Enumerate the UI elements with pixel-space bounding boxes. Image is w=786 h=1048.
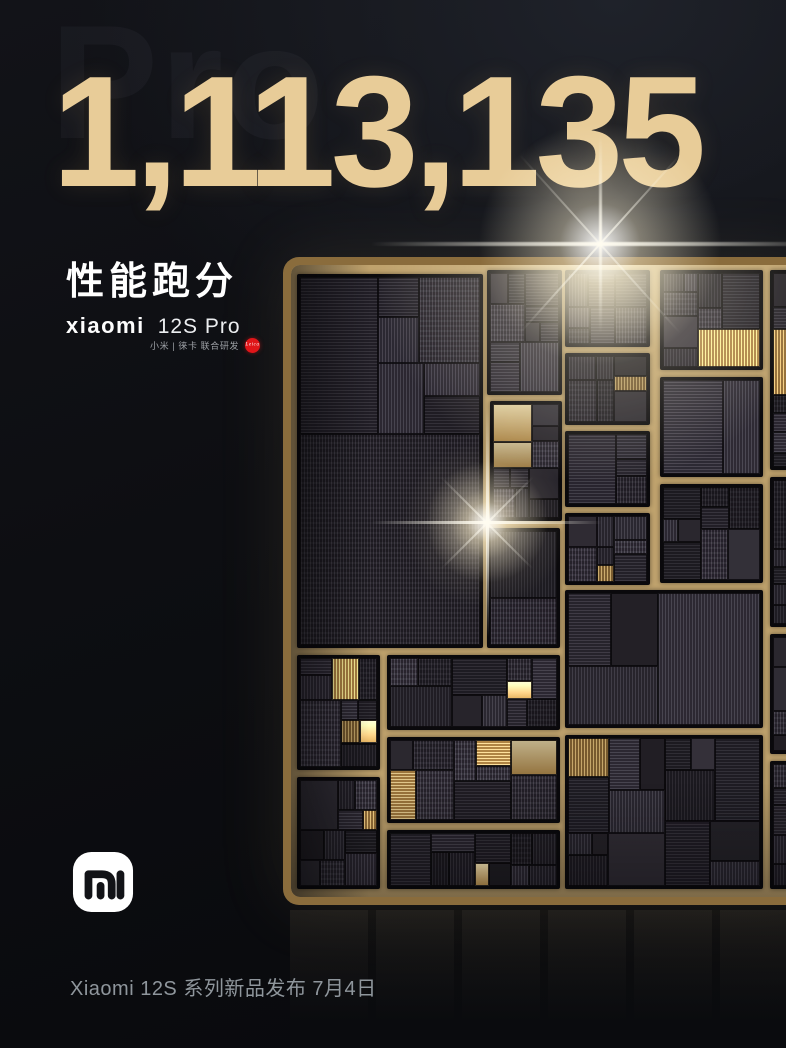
- die-cell: [454, 740, 476, 781]
- die-cell: [614, 516, 647, 540]
- die-cell: [701, 507, 728, 529]
- die-cell: [568, 738, 609, 777]
- mi-logo-icon: [72, 851, 134, 913]
- die-cell: [615, 307, 647, 344]
- die-cell: [568, 547, 597, 582]
- die-cell: [525, 306, 559, 322]
- die-cell: [490, 304, 525, 341]
- die-cell: [341, 744, 377, 767]
- die-cell: [431, 852, 449, 886]
- die-cell: [665, 821, 711, 886]
- die-macro-block: [297, 274, 483, 648]
- die-cell: [568, 593, 611, 666]
- die-cell: [597, 547, 614, 565]
- die-cell: [378, 277, 419, 317]
- die-cell: [773, 273, 786, 307]
- die-cell: [614, 540, 647, 555]
- die-cell: [663, 292, 698, 316]
- die-cell: [773, 567, 786, 585]
- die-cell: [490, 342, 520, 362]
- brand-line: xiaomi 12S Pro: [66, 313, 241, 339]
- die-cell: [773, 764, 786, 788]
- die-cell: [507, 658, 532, 681]
- die-cell: [773, 864, 786, 886]
- die-cell: [691, 738, 715, 770]
- die-macro-block: [770, 634, 786, 754]
- die-cell: [597, 380, 614, 422]
- die-cell: [338, 810, 363, 829]
- die-cell: [773, 637, 786, 667]
- die-cell: [300, 658, 332, 675]
- die-cell: [360, 720, 377, 744]
- die-cell: [663, 519, 678, 542]
- die-cell: [476, 766, 511, 781]
- die-cell: [723, 380, 760, 474]
- die-cell: [300, 434, 480, 645]
- die-cell: [300, 675, 332, 700]
- die-cell: [490, 273, 508, 304]
- die-macro-block: [487, 528, 560, 648]
- chip-die-visual: [291, 265, 786, 897]
- die-cell: [568, 516, 597, 547]
- die-cell: [773, 480, 786, 549]
- die-cell: [493, 468, 510, 488]
- die-macro-block: [565, 590, 763, 728]
- die-cell: [529, 468, 559, 499]
- die-cell: [614, 376, 647, 390]
- die-cell: [663, 380, 723, 474]
- die-cell: [493, 442, 532, 468]
- die-macro-block: [565, 735, 763, 889]
- die-cell: [515, 488, 529, 518]
- die-cell: [475, 833, 511, 863]
- die-cell: [710, 821, 760, 862]
- die-cell: [431, 833, 475, 852]
- die-cell: [597, 516, 614, 547]
- die-cell: [529, 499, 559, 518]
- die-cell: [568, 307, 590, 328]
- die-cell: [520, 342, 559, 392]
- die-cell: [355, 780, 377, 810]
- die-cell: [773, 329, 786, 395]
- die-cell: [592, 833, 608, 855]
- die-cell: [341, 720, 361, 744]
- die-cell: [416, 770, 454, 820]
- die-cell: [511, 833, 532, 865]
- die-cell: [615, 273, 647, 307]
- die-cell: [390, 658, 418, 686]
- die-cell: [663, 348, 698, 367]
- die-cell: [701, 529, 728, 580]
- die-cell: [614, 356, 647, 376]
- die-cell: [508, 273, 524, 304]
- die-cell: [710, 861, 760, 886]
- die-cell: [341, 700, 358, 720]
- die-cell: [568, 380, 597, 422]
- die-macro-block: [660, 270, 763, 370]
- die-cell: [390, 740, 413, 770]
- die-cell: [390, 833, 431, 886]
- die-cell: [419, 277, 480, 363]
- die-cell: [568, 434, 616, 504]
- die-cell: [338, 780, 355, 810]
- die-cell: [773, 711, 786, 736]
- leica-logo-icon: Leica: [245, 338, 260, 353]
- die-cell: [345, 830, 377, 853]
- die-cell: [424, 363, 480, 396]
- die-cell: [773, 413, 786, 433]
- die-cell: [475, 863, 489, 886]
- die-cell: [511, 740, 557, 775]
- die-macro-block: [770, 761, 786, 889]
- die-cell: [773, 605, 786, 624]
- die-cell: [609, 790, 665, 833]
- die-cell: [489, 863, 511, 886]
- die-cell: [507, 699, 527, 727]
- footer-text: Xiaomi 12S 系列新品发布 7月4日: [70, 972, 377, 1001]
- coop-line: 小米 | 徕卡 联合研发 Leica: [150, 338, 260, 353]
- die-cell: [532, 441, 559, 468]
- die-cell: [773, 667, 786, 711]
- die-cell: [616, 476, 647, 504]
- die-cell: [493, 488, 515, 518]
- die-cell: [363, 810, 377, 829]
- die-cell: [568, 328, 590, 344]
- coop-line-text: 小米 | 徕卡 联合研发: [150, 339, 239, 352]
- die-cell: [449, 852, 476, 886]
- die-cell: [507, 681, 532, 698]
- die-cell: [568, 666, 658, 725]
- die-cell: [525, 322, 540, 342]
- die-cell: [320, 860, 345, 886]
- die-cell: [418, 658, 452, 686]
- die-cell: [482, 695, 507, 727]
- die-cell: [568, 833, 592, 855]
- score-number: 1,113,135: [52, 53, 701, 211]
- die-cell: [511, 775, 557, 820]
- die-cell: [424, 396, 480, 434]
- die-cell: [698, 308, 722, 328]
- die-cell: [490, 362, 520, 392]
- die-cell: [773, 805, 786, 835]
- die-cell: [590, 307, 616, 344]
- die-cell: [597, 565, 614, 582]
- die-cell: [378, 363, 424, 434]
- die-cell: [701, 487, 728, 507]
- die-cell: [773, 307, 786, 329]
- die-cell: [390, 686, 452, 727]
- die-cell: [540, 322, 559, 342]
- die-cell: [300, 700, 341, 767]
- die-cell: [345, 853, 377, 886]
- die-macro-block: [387, 655, 560, 730]
- die-cell: [773, 788, 786, 806]
- die-cell: [658, 593, 760, 725]
- die-cell: [476, 740, 511, 766]
- die-cell: [525, 273, 559, 306]
- die-cell: [568, 356, 596, 380]
- die-cell: [773, 835, 786, 864]
- chip-frame: [283, 257, 786, 905]
- die-macro-block: [565, 431, 650, 507]
- die-cell: [332, 658, 359, 700]
- die-cell: [568, 855, 608, 886]
- die-cell: [773, 584, 786, 605]
- die-cell: [773, 549, 786, 567]
- die-cell: [568, 777, 609, 834]
- die-cell: [452, 695, 483, 727]
- die-macro-block: [387, 830, 560, 889]
- die-cell: [715, 738, 760, 821]
- die-cell: [773, 395, 786, 413]
- die-macro-block: [660, 377, 763, 477]
- die-cell: [614, 391, 647, 422]
- die-cell: [773, 735, 786, 751]
- die-cell: [510, 468, 529, 488]
- die-cell: [359, 658, 377, 700]
- die-cell: [300, 277, 378, 434]
- die-cell: [728, 529, 760, 580]
- die-macro-block: [297, 655, 380, 770]
- die-cell: [532, 426, 559, 440]
- die-macro-block: [297, 777, 380, 889]
- die-cell: [773, 453, 786, 467]
- die-cell: [532, 404, 559, 426]
- die-cell: [452, 658, 507, 695]
- die-cell: [511, 865, 528, 886]
- die-cell: [611, 593, 658, 666]
- die-cell: [614, 554, 647, 582]
- die-cell: [663, 542, 701, 580]
- die-cell: [490, 531, 557, 598]
- die-cell: [608, 833, 665, 886]
- die-cell: [358, 700, 377, 720]
- die-cell: [532, 658, 557, 699]
- score-label: 性能跑分: [66, 250, 238, 305]
- die-cell: [698, 273, 722, 308]
- die-cell: [527, 699, 557, 727]
- die-cell: [532, 833, 557, 865]
- die-macro-block: [770, 477, 786, 627]
- die-cell: [300, 830, 324, 860]
- die-cell: [529, 865, 557, 886]
- xiaomi-wordmark: xiaomi: [66, 313, 145, 339]
- die-cell: [300, 860, 320, 886]
- die-macro-block: [565, 513, 650, 585]
- die-cell: [729, 487, 760, 529]
- poster-background: Pro 1,113,135 性能跑分 xiaomi 12S Pro 小米 | 徕…: [0, 0, 786, 1048]
- die-macro-block: [387, 737, 560, 823]
- model-name: 12S Pro: [158, 315, 241, 339]
- die-cell: [596, 356, 614, 380]
- die-macro-block: [770, 270, 786, 470]
- die-cell: [413, 740, 454, 770]
- die-cell: [300, 780, 338, 830]
- die-macro-block: [565, 353, 650, 425]
- die-macro-block: [490, 401, 562, 521]
- die-macro-block: [660, 484, 763, 583]
- die-cell: [665, 770, 716, 820]
- die-cell: [616, 459, 647, 476]
- die-cell: [454, 781, 511, 820]
- die-cell: [378, 317, 419, 363]
- die-cell: [678, 519, 701, 542]
- die-macro-block: [487, 270, 562, 395]
- die-cell: [665, 738, 691, 770]
- die-cell: [568, 273, 588, 307]
- die-cell: [588, 273, 615, 307]
- die-cell: [616, 434, 647, 459]
- die-cell: [493, 404, 532, 442]
- die-cell: [698, 329, 760, 367]
- die-cell: [663, 316, 698, 348]
- die-macro-block: [565, 270, 650, 347]
- die-cell: [609, 738, 640, 790]
- die-cell: [324, 830, 345, 860]
- die-cell: [722, 273, 760, 329]
- die-cell: [390, 770, 416, 820]
- die-cell: [640, 738, 665, 790]
- die-cell: [490, 598, 557, 645]
- die-cell: [663, 273, 684, 292]
- die-cell: [684, 273, 698, 292]
- die-cell: [663, 487, 701, 519]
- die-cell: [773, 432, 786, 453]
